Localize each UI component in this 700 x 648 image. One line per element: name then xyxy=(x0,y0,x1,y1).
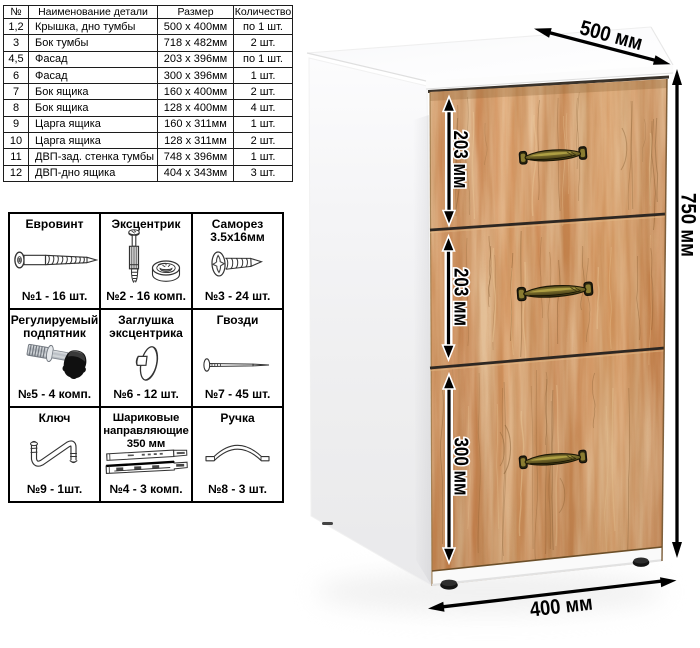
svg-text:300 мм: 300 мм xyxy=(450,438,472,496)
svg-text:750 мм: 750 мм xyxy=(677,193,700,257)
svg-text:203 мм: 203 мм xyxy=(449,131,471,189)
svg-text:203 мм: 203 мм xyxy=(450,268,472,326)
